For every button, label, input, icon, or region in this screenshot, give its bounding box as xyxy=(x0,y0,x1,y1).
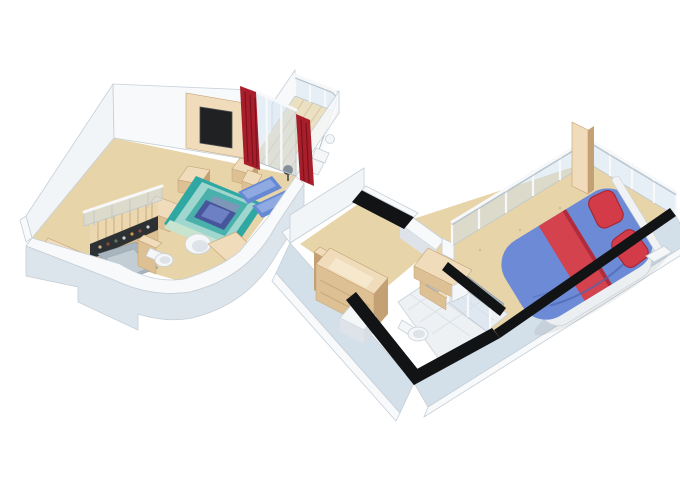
upper-level-unit xyxy=(272,122,680,421)
balcony-table xyxy=(326,135,335,144)
floor-plan-illustration xyxy=(0,0,680,486)
floor-plan-canvas xyxy=(0,0,680,486)
tv-screen xyxy=(200,107,232,148)
wood-screen-panel xyxy=(572,122,594,194)
egg-chair xyxy=(185,234,211,254)
